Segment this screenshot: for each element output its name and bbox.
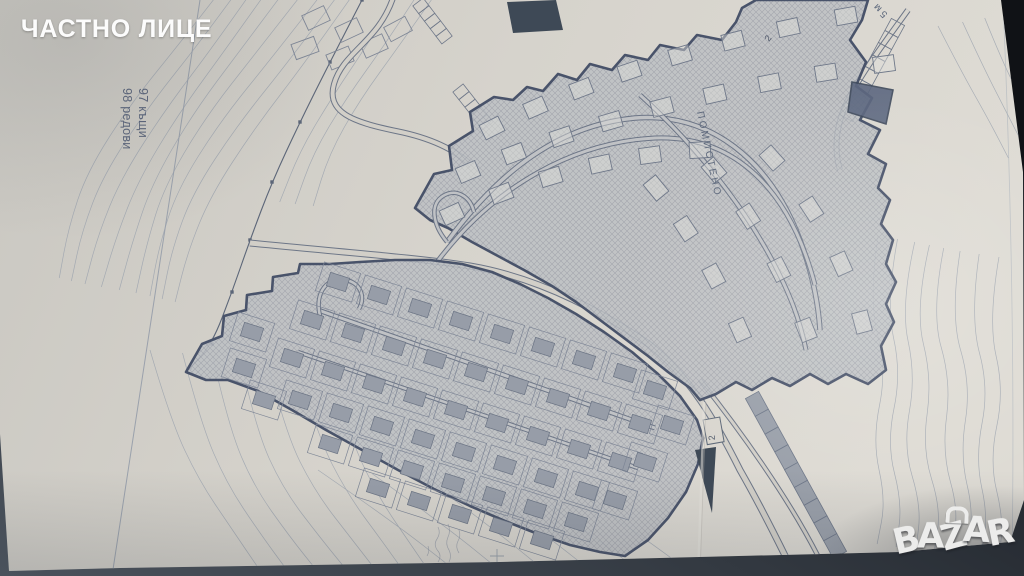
house-footprint [758,73,782,93]
note-line-rows: 98 редови [119,88,135,150]
site-plan-drawing: ПОМИСТЕНО5м22 [0,0,1024,576]
house-footprint [814,63,837,82]
handwritten-note: 97 къщи 98 редови [119,88,151,150]
listing-photo: ПОМИСТЕНО5м22 ЧАСТНО ЛИЦЕ 97 къщи 98 ред… [0,0,1024,576]
house-footprint [873,55,896,74]
house-footprint [834,6,858,26]
house-footprint [814,63,837,82]
seller-watermark: ЧАСТНО ЛИЦЕ [21,15,212,44]
house-footprint [639,146,662,165]
house-footprint [639,146,662,165]
house-footprint [873,55,896,74]
survey-point [360,0,363,2]
survey-point [230,290,233,293]
note-line-houses: 97 къщи [135,88,151,150]
bag-handle-icon [945,506,969,524]
survey-point [270,180,273,183]
house-footprint [834,6,858,26]
house-footprint [758,73,782,93]
dark-building [507,0,563,33]
